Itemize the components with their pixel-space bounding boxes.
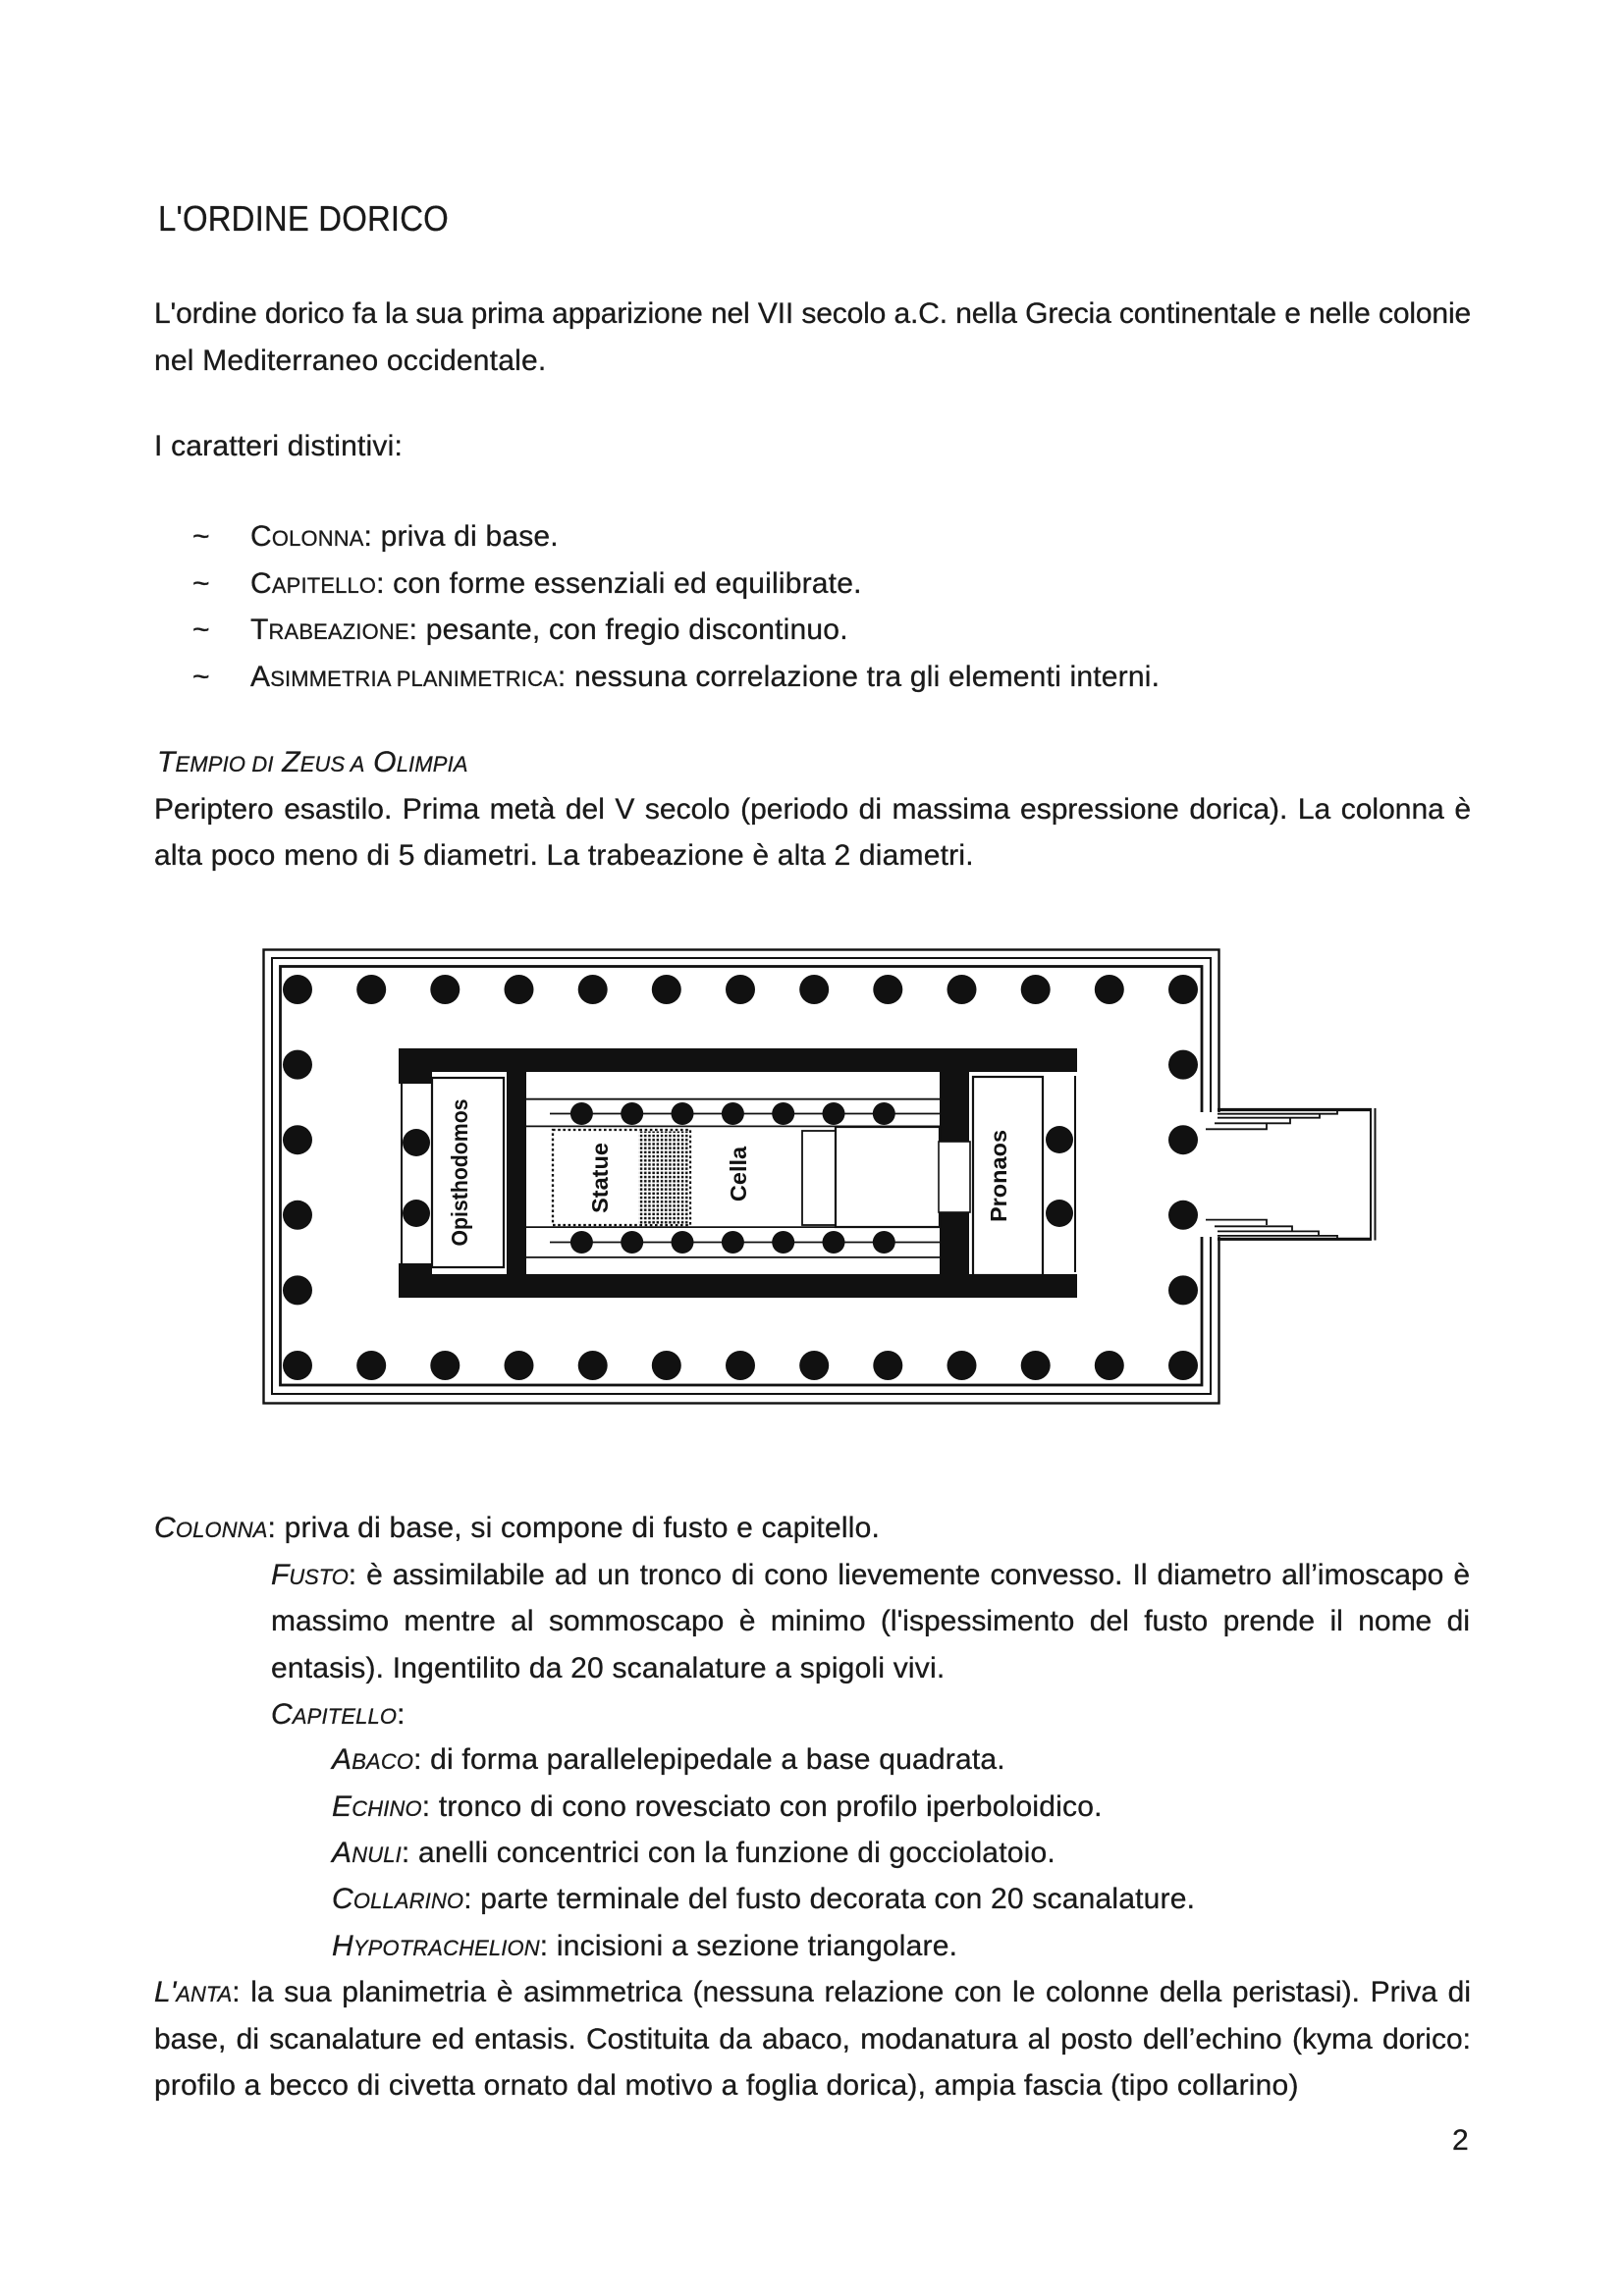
svg-text:Cella: Cella	[726, 1146, 751, 1201]
svg-text:Statue: Statue	[587, 1143, 613, 1213]
svg-text:Opisthodomos: Opisthodomos	[447, 1099, 472, 1247]
svg-text:Pronaos: Pronaos	[986, 1130, 1011, 1222]
